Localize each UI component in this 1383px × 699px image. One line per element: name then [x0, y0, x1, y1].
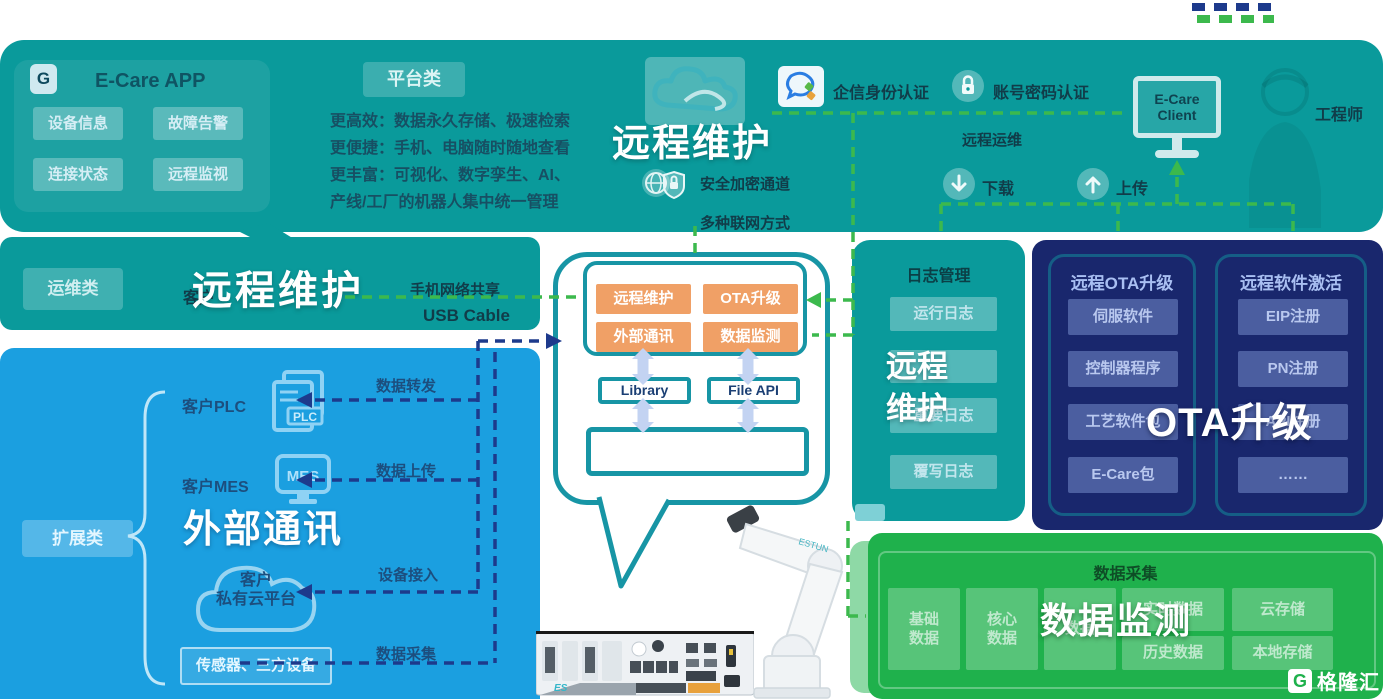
- platform-line: 更便捷：手机、电脑随时随地查看: [330, 134, 570, 158]
- decor-dashes: [1192, 7, 1274, 19]
- remote-ops-label: 远程运维: [962, 129, 1022, 150]
- brace-shape: [120, 388, 170, 688]
- module-ota-upgrade: OTA升级: [703, 284, 798, 314]
- data-square-basic-label: 基础数据: [907, 610, 941, 649]
- private-cloud-line2: 私有云平台: [186, 585, 326, 609]
- data-overlay-title: 数据监测: [1040, 592, 1192, 644]
- ecare-button-remote-monitor: 远程监视: [153, 158, 243, 191]
- log-overlay-title: 远程 维护: [886, 346, 948, 430]
- network-modes-label: 多种联网方式: [700, 212, 790, 233]
- log-panel-header: 日志管理: [852, 262, 1025, 286]
- platform-line: 更高效：数据永久存储、极速检索: [330, 107, 570, 131]
- wechat-auth-icon: [778, 66, 824, 107]
- infographic-canvas: G E-Care APP 设备信息 故障告警 连接状态 远程监视 平台类 更高效…: [0, 0, 1383, 699]
- data-square-core: 核心数据: [966, 588, 1038, 670]
- flow-label-collect: 数据采集: [376, 643, 436, 664]
- ecare-app-title: E-Care APP: [95, 70, 205, 93]
- secure-channel-label: 安全加密通道: [700, 173, 790, 194]
- download-icon: [943, 168, 975, 200]
- watermark-g-icon: G: [1288, 669, 1312, 693]
- plc-icon: PLC: [268, 368, 334, 434]
- ota-column-upgrade-header: 远程OTA升级: [1051, 269, 1193, 294]
- ota-item-pn: PN注册: [1238, 351, 1348, 387]
- library-box: Library: [598, 377, 691, 404]
- data-box-local-storage: 本地存储: [1232, 636, 1333, 670]
- ecare-button-connection: 连接状态: [33, 158, 123, 191]
- download-label: 下载: [982, 175, 1014, 199]
- ota-column-activation-header: 远程软件激活: [1218, 269, 1364, 294]
- ops-title: 远程维护: [192, 258, 364, 316]
- ecare-button-fault-alarm: 故障告警: [153, 107, 243, 140]
- platform-line: 产线/工厂的机器人集中统一管理: [330, 188, 558, 212]
- speech-bubble-tail: [599, 497, 669, 586]
- base-layer-box: [586, 427, 809, 476]
- module-data-monitor: 数据监测: [703, 322, 798, 352]
- log-overlay-line1: 远程: [886, 346, 948, 388]
- password-auth-label: 账号密码认证: [993, 79, 1089, 103]
- svg-text:ES: ES: [554, 683, 568, 694]
- watermark-logo: G 格隆汇: [1288, 666, 1380, 695]
- wechat-auth-label: 企信身份认证: [833, 79, 929, 103]
- ecare-button-device-info: 设备信息: [33, 107, 123, 140]
- data-box-cloud-storage: 云存储: [1232, 588, 1333, 631]
- ops-badge: 运维类: [23, 268, 123, 310]
- flow-label-forward: 数据转发: [376, 375, 436, 396]
- monitor-base: [1155, 150, 1199, 158]
- ota-column-upgrade: 远程OTA升级 伺服软件 控制器程序 工艺软件包 E-Care包: [1048, 254, 1196, 516]
- watermark-text: 格隆汇: [1317, 666, 1380, 695]
- log-overlay-line2: 维护: [886, 388, 948, 430]
- upload-label: 上传: [1116, 175, 1148, 199]
- secure-channel-icon: [640, 164, 688, 202]
- upload-icon: [1077, 168, 1109, 200]
- monitor-stand: [1172, 138, 1182, 150]
- ota-column-activation: 远程软件激活 EIP注册 PN注册 API注册 ……: [1215, 254, 1367, 516]
- plc-icon-text: PLC: [293, 410, 317, 424]
- ota-item-servo: 伺服软件: [1068, 299, 1178, 335]
- data-square-basic: 基础数据: [888, 588, 960, 670]
- file-api-box: File API: [707, 377, 800, 404]
- flow-label-upload: 数据上传: [376, 460, 436, 481]
- engineer-silhouette-icon: [1243, 60, 1323, 230]
- flow-label-access: 设备接入: [378, 564, 438, 585]
- ota-overlay-title: OTA升级: [1146, 390, 1312, 448]
- customer-mes-label: 客户MES: [182, 473, 249, 497]
- engineer-label: 工程师: [1315, 101, 1363, 125]
- ecare-client-label: E-Care Client: [1147, 91, 1207, 123]
- customer-plc-label: 客户PLC: [182, 393, 246, 417]
- phone-share-label: 手机网络共享: [410, 279, 500, 300]
- ecare-app-icon: G: [30, 64, 57, 94]
- extension-badge: 扩展类: [22, 520, 133, 557]
- ota-item-ecare-pkg: E-Care包: [1068, 457, 1178, 493]
- banner-main-title: 远程维护: [612, 112, 772, 167]
- log-button-run: 运行日志: [890, 297, 997, 331]
- platform-line: 更丰富：可视化、数字孪生、AI、: [330, 161, 570, 185]
- data-panel-header: 数据采集: [868, 560, 1383, 584]
- robot-arm-photo: ESTUN: [680, 498, 860, 699]
- ota-item-more: ……: [1238, 457, 1348, 493]
- module-remote-maintenance: 远程维护: [596, 284, 691, 314]
- sensors-box: 传感器、三方设备: [180, 647, 332, 685]
- usb-cable-label: USB Cable: [423, 306, 510, 326]
- ota-item-controller: 控制器程序: [1068, 351, 1178, 387]
- mes-icon-text: MES: [287, 468, 320, 485]
- log-button-overwrite: 覆写日志: [890, 455, 997, 489]
- platform-badge: 平台类: [363, 62, 465, 97]
- extension-title: 外部通讯: [183, 498, 343, 553]
- ecare-client-monitor: E-Care Client: [1133, 76, 1221, 138]
- data-square-core-label: 核心数据: [985, 610, 1019, 649]
- password-auth-icon: [952, 70, 984, 102]
- ota-item-eip: EIP注册: [1238, 299, 1348, 335]
- module-external-comm: 外部通讯: [596, 322, 691, 352]
